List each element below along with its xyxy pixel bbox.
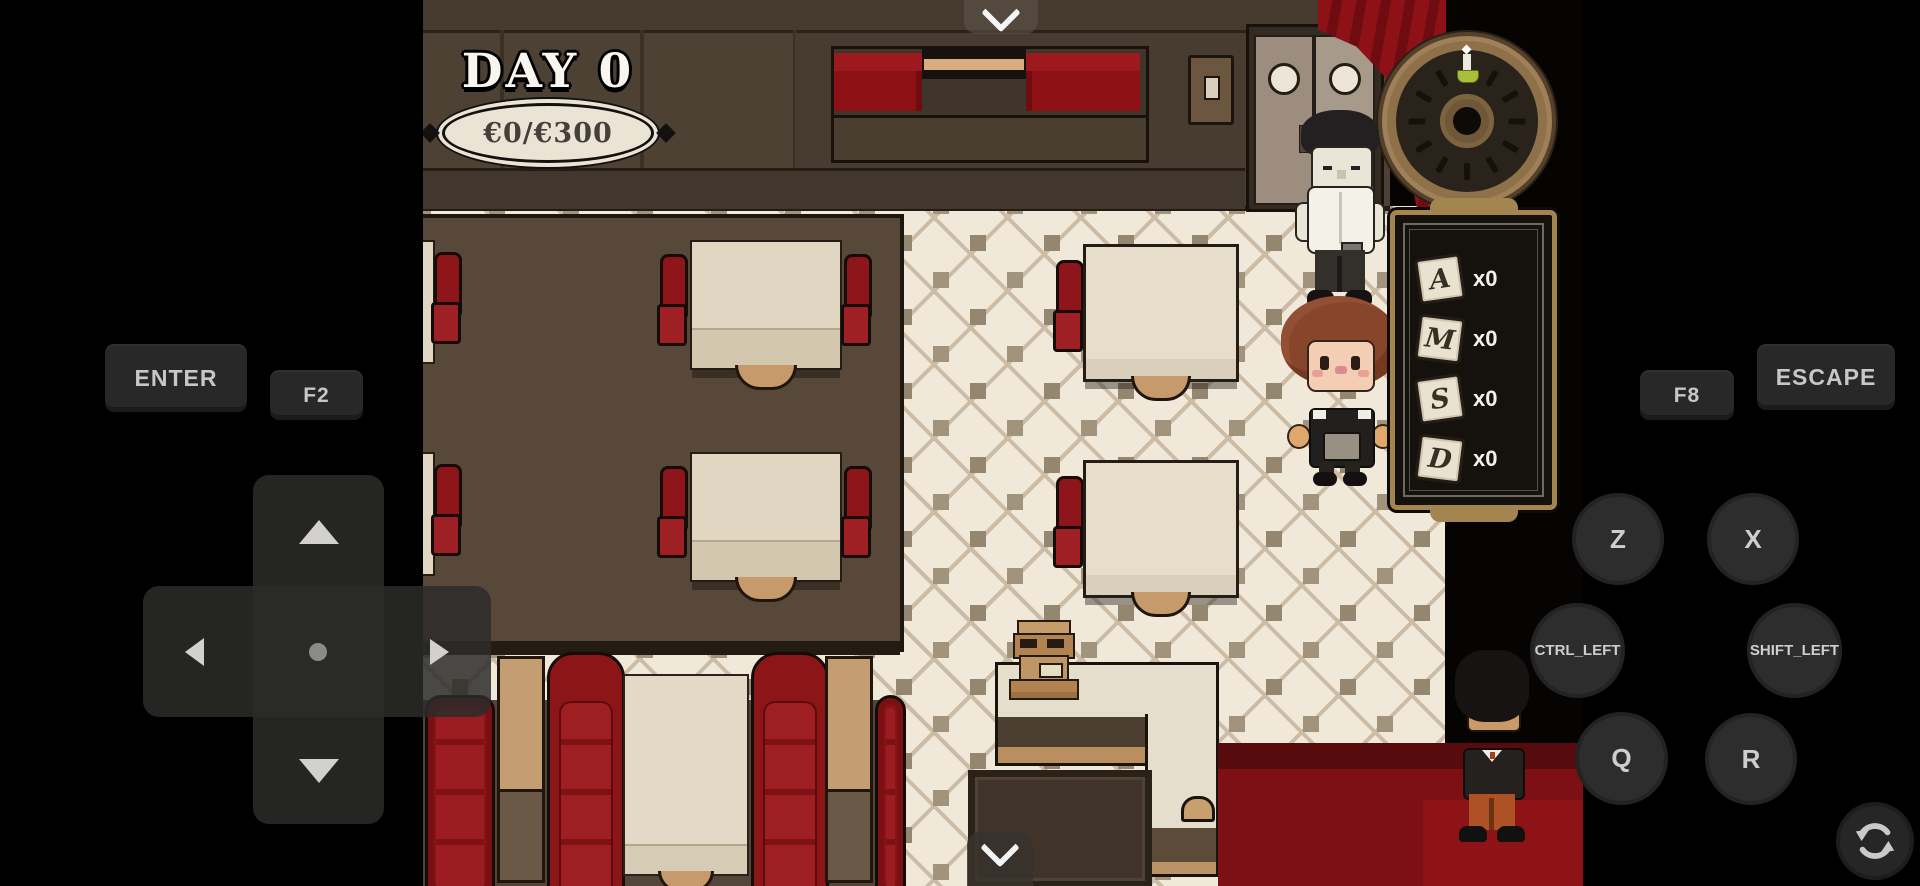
chair [1053, 260, 1083, 358]
dining-table [690, 452, 842, 582]
money-value: €0/€300 [483, 118, 613, 149]
door-window [1329, 63, 1361, 95]
chevron-down-icon [981, 0, 1021, 33]
wall-top-band [423, 0, 1390, 33]
ticket-row: D x0 [1417, 437, 1540, 481]
doorman-npc [1453, 650, 1531, 842]
x-button[interactable]: X [1707, 493, 1799, 585]
top-pull-handle[interactable] [964, 0, 1038, 34]
counter-front [1145, 828, 1219, 865]
shift-left-button[interactable]: SHIFT_LEFT [1747, 603, 1842, 698]
booth-seat [834, 53, 922, 111]
dining-table [1083, 244, 1239, 382]
wall-clock-icon [1378, 32, 1556, 210]
booth-bench-partial [875, 695, 906, 886]
f8-key-button[interactable]: F8 [1640, 370, 1734, 420]
ticket-count: x0 [1473, 266, 1497, 292]
ctrl-left-button[interactable]: CTRL_LEFT [1530, 603, 1625, 698]
counter-trim [1145, 862, 1219, 877]
door-window [1268, 63, 1300, 95]
chair [1053, 476, 1083, 574]
booth-bench [751, 652, 829, 886]
emulator-screen: A x0 M x0 S x0 D x0 DAY 0 €0 [0, 0, 1920, 886]
wall-fixture [1188, 55, 1234, 125]
booth-seat [1026, 53, 1140, 111]
ticket-icon: D [1414, 433, 1465, 484]
booth-pillar [497, 656, 545, 886]
chair [841, 254, 871, 352]
dpad-center-dot [309, 643, 327, 661]
r-button[interactable]: R [1705, 713, 1797, 805]
clock-hub [1440, 94, 1494, 148]
cash-register [1009, 620, 1077, 710]
dpad-up-arrow-icon[interactable] [299, 520, 339, 544]
service-bell [1181, 796, 1215, 822]
enter-key-button[interactable]: ENTER [105, 344, 247, 412]
day-money-hud: DAY 0 €0/€300 [437, 44, 659, 163]
ticket-icon: A [1414, 253, 1466, 305]
rotate-screen-button[interactable] [1836, 802, 1914, 880]
ticket-icon: M [1414, 313, 1465, 364]
dining-table [690, 240, 842, 370]
chevron-down-icon [980, 828, 1020, 868]
dpad[interactable] [143, 475, 491, 824]
booth-divider-beam [423, 641, 900, 655]
day-label: DAY 0 [437, 44, 659, 99]
ticket-count: x0 [1473, 446, 1497, 472]
chair [657, 254, 687, 352]
money-badge: €0/€300 [442, 103, 654, 163]
ticket-tally-panel: A x0 M x0 S x0 D x0 [1390, 210, 1557, 510]
ticket-count: x0 [1473, 386, 1497, 412]
ticket-row: S x0 [1417, 377, 1540, 421]
ticket-row: M x0 [1417, 317, 1540, 361]
ticket-row: A x0 [1417, 257, 1540, 301]
ticket-count: x0 [1473, 326, 1497, 352]
booth-pillar [825, 656, 873, 886]
wall-ledge [423, 168, 1245, 209]
bar-counter [831, 115, 1149, 163]
chef-npc [1295, 110, 1385, 306]
player-character [1281, 296, 1399, 486]
booth-dining-table [623, 674, 749, 876]
clock-hand-candle [1463, 54, 1471, 74]
z-button[interactable]: Z [1572, 493, 1664, 585]
booth-table [922, 49, 1026, 79]
escape-key-button[interactable]: ESCAPE [1757, 344, 1895, 410]
chair [657, 466, 687, 564]
bottom-pull-handle[interactable] [967, 832, 1033, 886]
dining-table [1083, 460, 1239, 598]
game-viewport: A x0 M x0 S x0 D x0 DAY 0 €0 [423, 0, 1583, 886]
bar-booth [831, 46, 1149, 160]
dpad-right-arrow-icon[interactable] [430, 639, 449, 665]
ticket-icon: S [1414, 373, 1466, 425]
clock-face [1396, 50, 1538, 192]
chair [431, 252, 461, 350]
dpad-left-arrow-icon[interactable] [185, 638, 204, 666]
counter-trim [995, 747, 1151, 766]
rotate-icon [1852, 818, 1898, 864]
chair [841, 466, 871, 564]
f2-key-button[interactable]: F2 [270, 370, 363, 420]
q-button[interactable]: Q [1575, 712, 1668, 805]
counter-front [995, 717, 1151, 750]
booth-bench [547, 652, 625, 886]
dpad-down-arrow-icon[interactable] [299, 759, 339, 783]
